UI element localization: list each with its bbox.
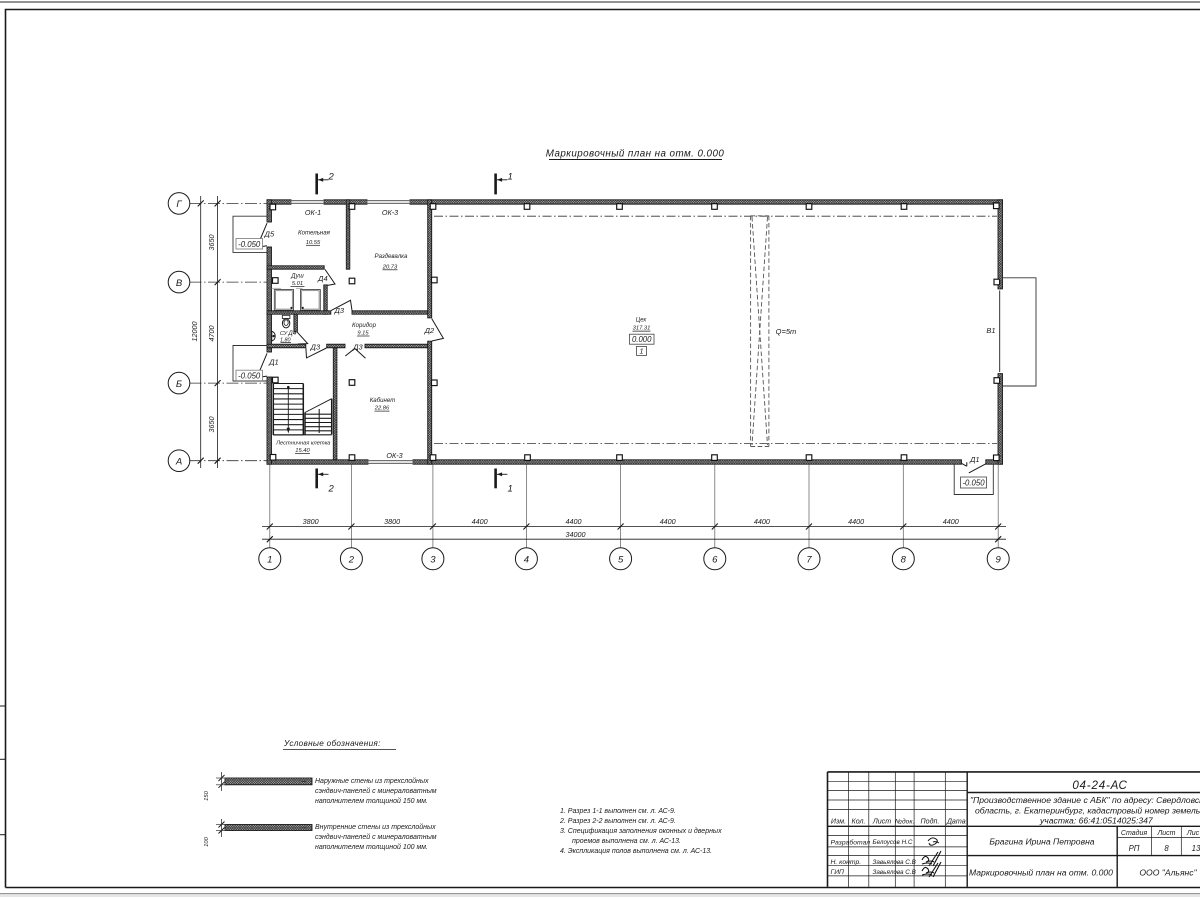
svg-text:Наружные стены из трехслойных: Наружные стены из трехслойных	[315, 777, 429, 785]
svg-text:4400: 4400	[848, 517, 864, 526]
svg-text:3650: 3650	[207, 235, 216, 251]
svg-text:Белоусов Н.С: Белоусов Н.С	[873, 839, 913, 846]
svg-text:Маркировочный план на отм. 0.0: Маркировочный план на отм. 0.000	[969, 868, 1113, 878]
svg-text:Дата: Дата	[946, 817, 966, 825]
svg-text:1: 1	[507, 172, 512, 183]
svg-text:Подп.: Подп.	[921, 817, 940, 825]
svg-text:ОК-1: ОК-1	[305, 208, 321, 217]
svg-text:Котельная: Котельная	[298, 230, 331, 237]
svg-text:4400: 4400	[566, 517, 582, 526]
svg-text:6: 6	[712, 555, 718, 566]
svg-text:5: 5	[618, 555, 624, 566]
svg-text:сэндвич-панелей с минераловатн: сэндвич-панелей с минераловатным	[315, 833, 437, 841]
svg-text:Условные обозначения:: Условные обозначения:	[283, 739, 381, 748]
svg-text:13: 13	[1192, 844, 1200, 853]
svg-text:проемов выполнена см. л. АС-13: проемов выполнена см. л. АС-13.	[572, 838, 681, 845]
svg-text:сэндвич-панелей с минераловатн: сэндвич-панелей с минераловатным	[315, 787, 437, 795]
svg-text:ОК-3: ОК-3	[382, 208, 398, 217]
svg-text:150: 150	[204, 790, 210, 800]
svg-text:8: 8	[1164, 844, 1169, 853]
svg-text:4700: 4700	[207, 326, 216, 342]
svg-text:А: А	[175, 456, 182, 467]
svg-text:Завьялова С.В: Завьялова С.В	[873, 859, 916, 866]
svg-text:Цех: Цех	[636, 318, 648, 324]
svg-text:участка: 66:41:0514025:347: участка: 66:41:0514025:347	[1039, 816, 1154, 826]
svg-text:Д4: Д4	[317, 274, 327, 283]
svg-text:"Производственное здание с АБК: "Производственное здание с АБК" по адрес…	[970, 795, 1200, 805]
svg-text:наполнителем толщиной 150 мм.: наполнителем толщиной 150 мм.	[315, 797, 428, 805]
svg-text:34000: 34000	[566, 530, 586, 539]
svg-text:Кабинет: Кабинет	[370, 397, 396, 404]
svg-text:Лис: Лис	[1186, 830, 1200, 837]
svg-text:9: 9	[996, 555, 1002, 566]
svg-text:Д3: Д3	[334, 306, 345, 315]
svg-text:Д2: Д2	[424, 326, 435, 335]
svg-text:4400: 4400	[754, 517, 770, 526]
svg-text:Д1: Д1	[268, 357, 278, 366]
svg-text:1. Разрез 1-1 выполнен см. л.: 1. Разрез 1-1 выполнен см. л. АС-9.	[560, 808, 676, 815]
svg-text:В: В	[176, 278, 183, 289]
svg-text:20.73: 20.73	[382, 264, 398, 270]
svg-text:Д4: Д4	[287, 330, 296, 337]
svg-text:Маркировочный план на отм. 0.0: Маркировочный план на отм. 0.000	[546, 149, 725, 160]
svg-text:Завьялова С.В: Завьялова С.В	[873, 869, 916, 876]
svg-text:7: 7	[806, 555, 812, 566]
svg-text:Д1: Д1	[969, 455, 979, 464]
svg-text:ГИП: ГИП	[831, 869, 845, 876]
svg-text:0.000: 0.000	[632, 335, 652, 344]
svg-text:Душ: Душ	[290, 272, 303, 279]
svg-text:Г: Г	[176, 199, 182, 210]
svg-text:4. Экспликация полов выполнен: 4. Экспликация полов выполнена см. л. АС…	[560, 848, 712, 855]
svg-text:3: 3	[430, 555, 436, 566]
svg-text:10.55: 10.55	[306, 240, 321, 246]
svg-text:РП: РП	[1129, 844, 1140, 853]
svg-text:наполнителем толщиной 100 мм.: наполнителем толщиной 100 мм.	[315, 843, 428, 851]
svg-text:4400: 4400	[472, 517, 488, 526]
svg-text:3. Спецификация заполнения ок: 3. Спецификация заполнения оконных и две…	[560, 827, 722, 835]
svg-text:–: –	[301, 778, 306, 785]
svg-text:Д5: Д5	[264, 230, 275, 239]
svg-text:Н. контр.: Н. контр.	[831, 859, 862, 866]
svg-text:4400: 4400	[943, 517, 959, 526]
svg-text:Кол.: Кол.	[852, 817, 866, 825]
svg-text:1: 1	[640, 347, 644, 356]
svg-text:ООО "Альянс": ООО "Альянс"	[1139, 867, 1197, 877]
svg-text:-0.050: -0.050	[962, 479, 985, 488]
svg-text:22.86: 22.86	[374, 406, 390, 412]
svg-text:2: 2	[328, 172, 335, 183]
svg-text:04-24-АС: 04-24-АС	[1072, 779, 1127, 792]
svg-text:12000: 12000	[190, 322, 199, 342]
svg-text:4: 4	[524, 555, 529, 566]
svg-text:Брагина Ирина Петровна: Брагина Ирина Петровна	[989, 837, 1094, 847]
svg-text:Изм.: Изм.	[831, 817, 846, 825]
svg-text:Q=5т: Q=5т	[776, 327, 797, 336]
svg-text:Внутренние стены из трехслойны: Внутренние стены из трехслойных	[315, 823, 436, 831]
svg-text:В1: В1	[986, 326, 995, 335]
svg-text:8: 8	[901, 555, 907, 566]
svg-text:Коридор: Коридор	[352, 322, 377, 329]
svg-text:Д3: Д3	[310, 343, 321, 352]
svg-text:2. Разрез 2-2 выполнен см. л.: 2. Разрез 2-2 выполнен см. л. АС-9.	[559, 818, 676, 825]
svg-text:Раздевалка: Раздевалка	[375, 253, 409, 260]
svg-text:3650: 3650	[207, 417, 216, 433]
svg-text:-0.050: -0.050	[238, 372, 261, 381]
svg-text:Лист: Лист	[872, 817, 891, 825]
svg-text:2: 2	[328, 484, 335, 495]
svg-text:100: 100	[204, 836, 210, 846]
svg-text:1: 1	[267, 555, 272, 566]
svg-text:Б: Б	[176, 379, 182, 390]
svg-text:ОК-3: ОК-3	[386, 451, 402, 460]
svg-text:Лист: Лист	[1156, 830, 1175, 837]
svg-text:-0.050: -0.050	[238, 240, 261, 249]
svg-text:3800: 3800	[384, 517, 400, 526]
svg-text:3800: 3800	[303, 517, 319, 526]
svg-text:1: 1	[507, 484, 512, 495]
svg-text:4400: 4400	[660, 517, 676, 526]
svg-text:Лестничная клетка: Лестничная клетка	[275, 441, 330, 447]
svg-text:–: –	[301, 824, 306, 831]
svg-text:Стадия: Стадия	[1121, 829, 1147, 837]
svg-text:317.31: 317.31	[633, 326, 651, 332]
svg-text:2: 2	[348, 555, 355, 566]
svg-text:Разработал: Разработал	[831, 838, 871, 846]
svg-text:№док.: №док.	[895, 817, 915, 825]
svg-text:область, г. Екатеринбург, када: область, г. Екатеринбург, кадастровый но…	[975, 805, 1200, 815]
svg-text:Д3: Д3	[352, 343, 363, 352]
